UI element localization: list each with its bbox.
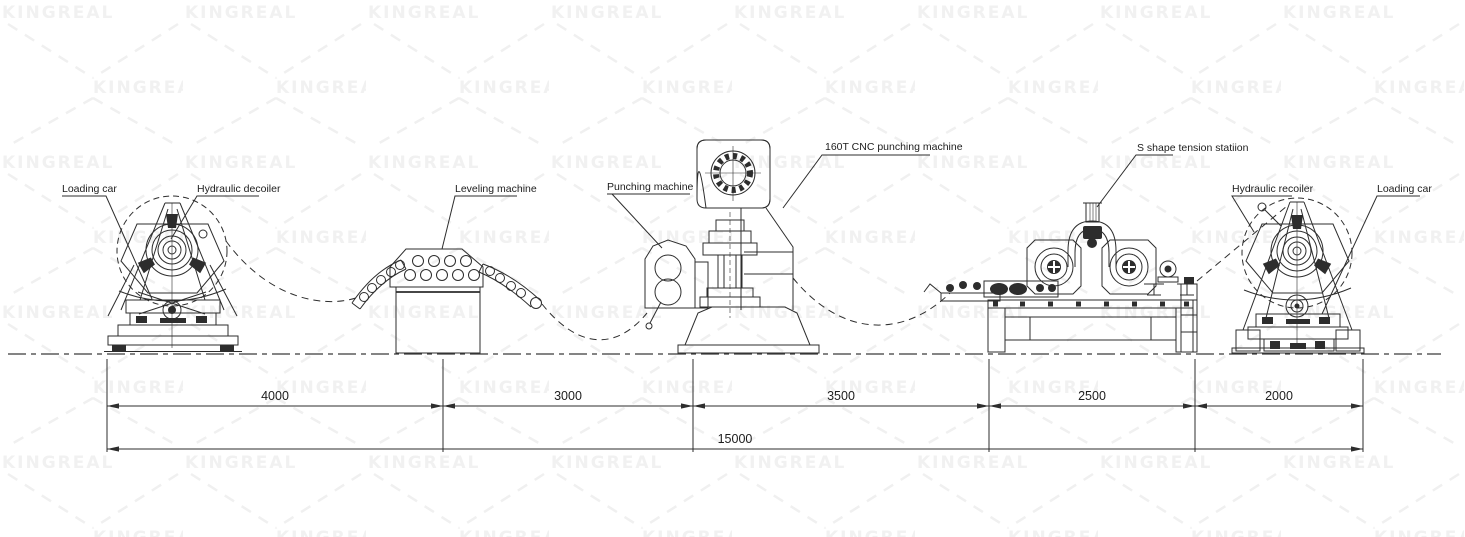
dimension-2000: 2000 bbox=[1265, 389, 1293, 403]
tension-station-label: S shape tension statiion bbox=[1137, 142, 1249, 154]
dimension-2500: 2500 bbox=[1078, 389, 1106, 403]
loading-car-left-label: Loading car bbox=[62, 183, 117, 195]
engineering-drawing-canvas: KINGREAL KINGREAL bbox=[0, 0, 1465, 537]
dimension-3500: 3500 bbox=[827, 389, 855, 403]
hydraulic-decoiler-label: Hydraulic decoiler bbox=[197, 183, 281, 195]
dimension-total-15000: 15000 bbox=[718, 432, 753, 446]
dimension-3000: 3000 bbox=[554, 389, 582, 403]
loading-car-right-label: Loading car bbox=[1377, 183, 1432, 195]
cnc-punching-machine-label: 160T CNC punching machine bbox=[825, 141, 963, 153]
punching-line-layout-svg: KINGREAL KINGREAL bbox=[0, 0, 1465, 537]
hydraulic-recoiler-label: Hydraulic recoiler bbox=[1232, 183, 1314, 195]
leveling-machine-label: Leveling machine bbox=[455, 183, 537, 195]
punching-machine-label: Punching machine bbox=[607, 181, 694, 193]
watermark-layer bbox=[0, 0, 1465, 537]
dimension-4000: 4000 bbox=[261, 389, 289, 403]
